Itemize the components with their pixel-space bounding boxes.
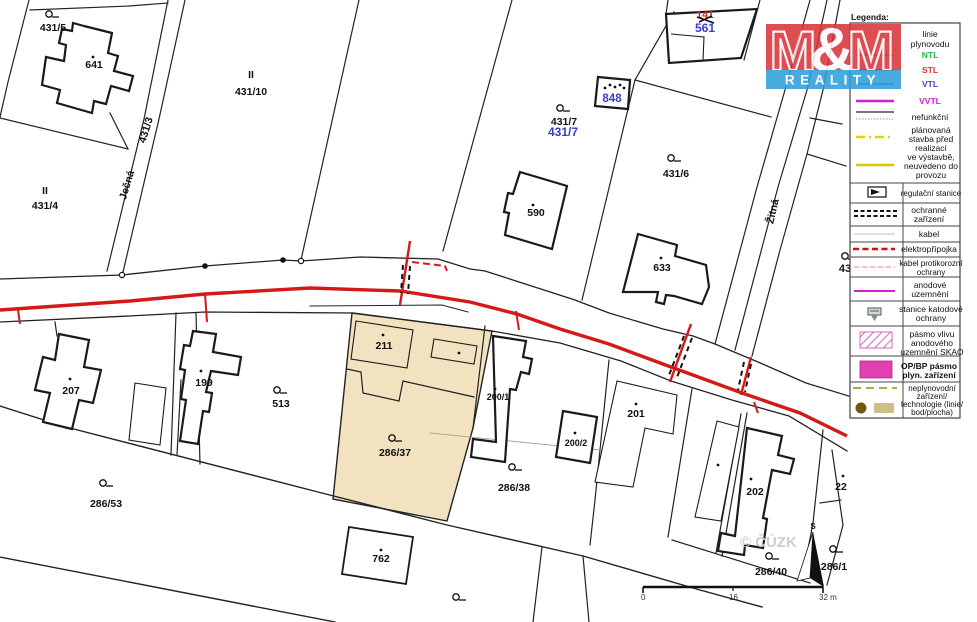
svg-text:plynovodu: plynovodu [911,39,950,49]
svg-text:431/5: 431/5 [40,22,66,34]
svg-text:201: 201 [627,408,645,420]
svg-text:431/7: 431/7 [548,125,578,139]
svg-text:plyn. zařízení: plyn. zařízení [902,370,956,380]
svg-text:S: S [810,522,816,531]
svg-text:561: 561 [695,21,715,35]
svg-text:431/4: 431/4 [32,200,58,212]
svg-text:513: 513 [272,398,290,410]
svg-text:kabel: kabel [919,229,939,239]
svg-text:286/53: 286/53 [90,498,122,510]
svg-text:REALITY: REALITY [785,73,881,88]
svg-text:regulační stanice: regulační stanice [901,189,962,198]
svg-text:286/37: 286/37 [379,447,411,459]
svg-text:32 m: 32 m [819,593,837,602]
svg-text:22: 22 [835,481,847,493]
svg-text:431/6: 431/6 [663,168,689,180]
svg-text:43: 43 [839,263,851,275]
svg-text:NTL: NTL [922,50,939,60]
svg-text:200/2: 200/2 [565,438,588,448]
svg-text:0: 0 [641,593,646,602]
svg-text:431/10: 431/10 [235,86,267,98]
svg-text:VTL: VTL [922,79,938,89]
svg-text:STL: STL [922,65,938,75]
svg-text:202: 202 [746,486,764,498]
svg-text:uzemnění SKAO: uzemnění SKAO [900,347,964,357]
svg-text:633: 633 [653,262,671,274]
svg-text:linie: linie [922,29,937,39]
svg-text:© ČÚZK: © ČÚZK [740,533,797,551]
svg-text:641: 641 [85,59,103,71]
svg-text:provozu: provozu [916,170,947,180]
svg-text:VVTL: VVTL [919,96,941,106]
svg-text:590: 590 [527,207,545,219]
svg-text:199: 199 [195,377,213,389]
svg-text:kabel protikorozní: kabel protikorozní [899,259,963,268]
svg-text:211: 211 [376,340,393,352]
svg-text:zařízení: zařízení [914,214,945,224]
svg-text:286/40: 286/40 [755,566,787,578]
svg-text:200/1: 200/1 [487,392,510,402]
svg-text:ochrany: ochrany [916,313,947,323]
svg-text:nefunkční: nefunkční [912,112,949,122]
svg-text:ochrany: ochrany [917,268,945,277]
svg-text:elektropřípojka: elektropřípojka [901,244,957,254]
svg-text:16: 16 [729,593,738,602]
svg-text:bod/plocha): bod/plocha) [911,408,953,417]
svg-text:762: 762 [372,553,390,565]
svg-text:uzemnění: uzemnění [911,289,949,299]
svg-text:207: 207 [62,385,80,397]
svg-text:848: 848 [602,93,622,105]
svg-text:II: II [248,69,254,81]
svg-text:286/1: 286/1 [821,561,847,573]
svg-text:II: II [42,185,48,197]
svg-text:286/38: 286/38 [498,482,530,494]
